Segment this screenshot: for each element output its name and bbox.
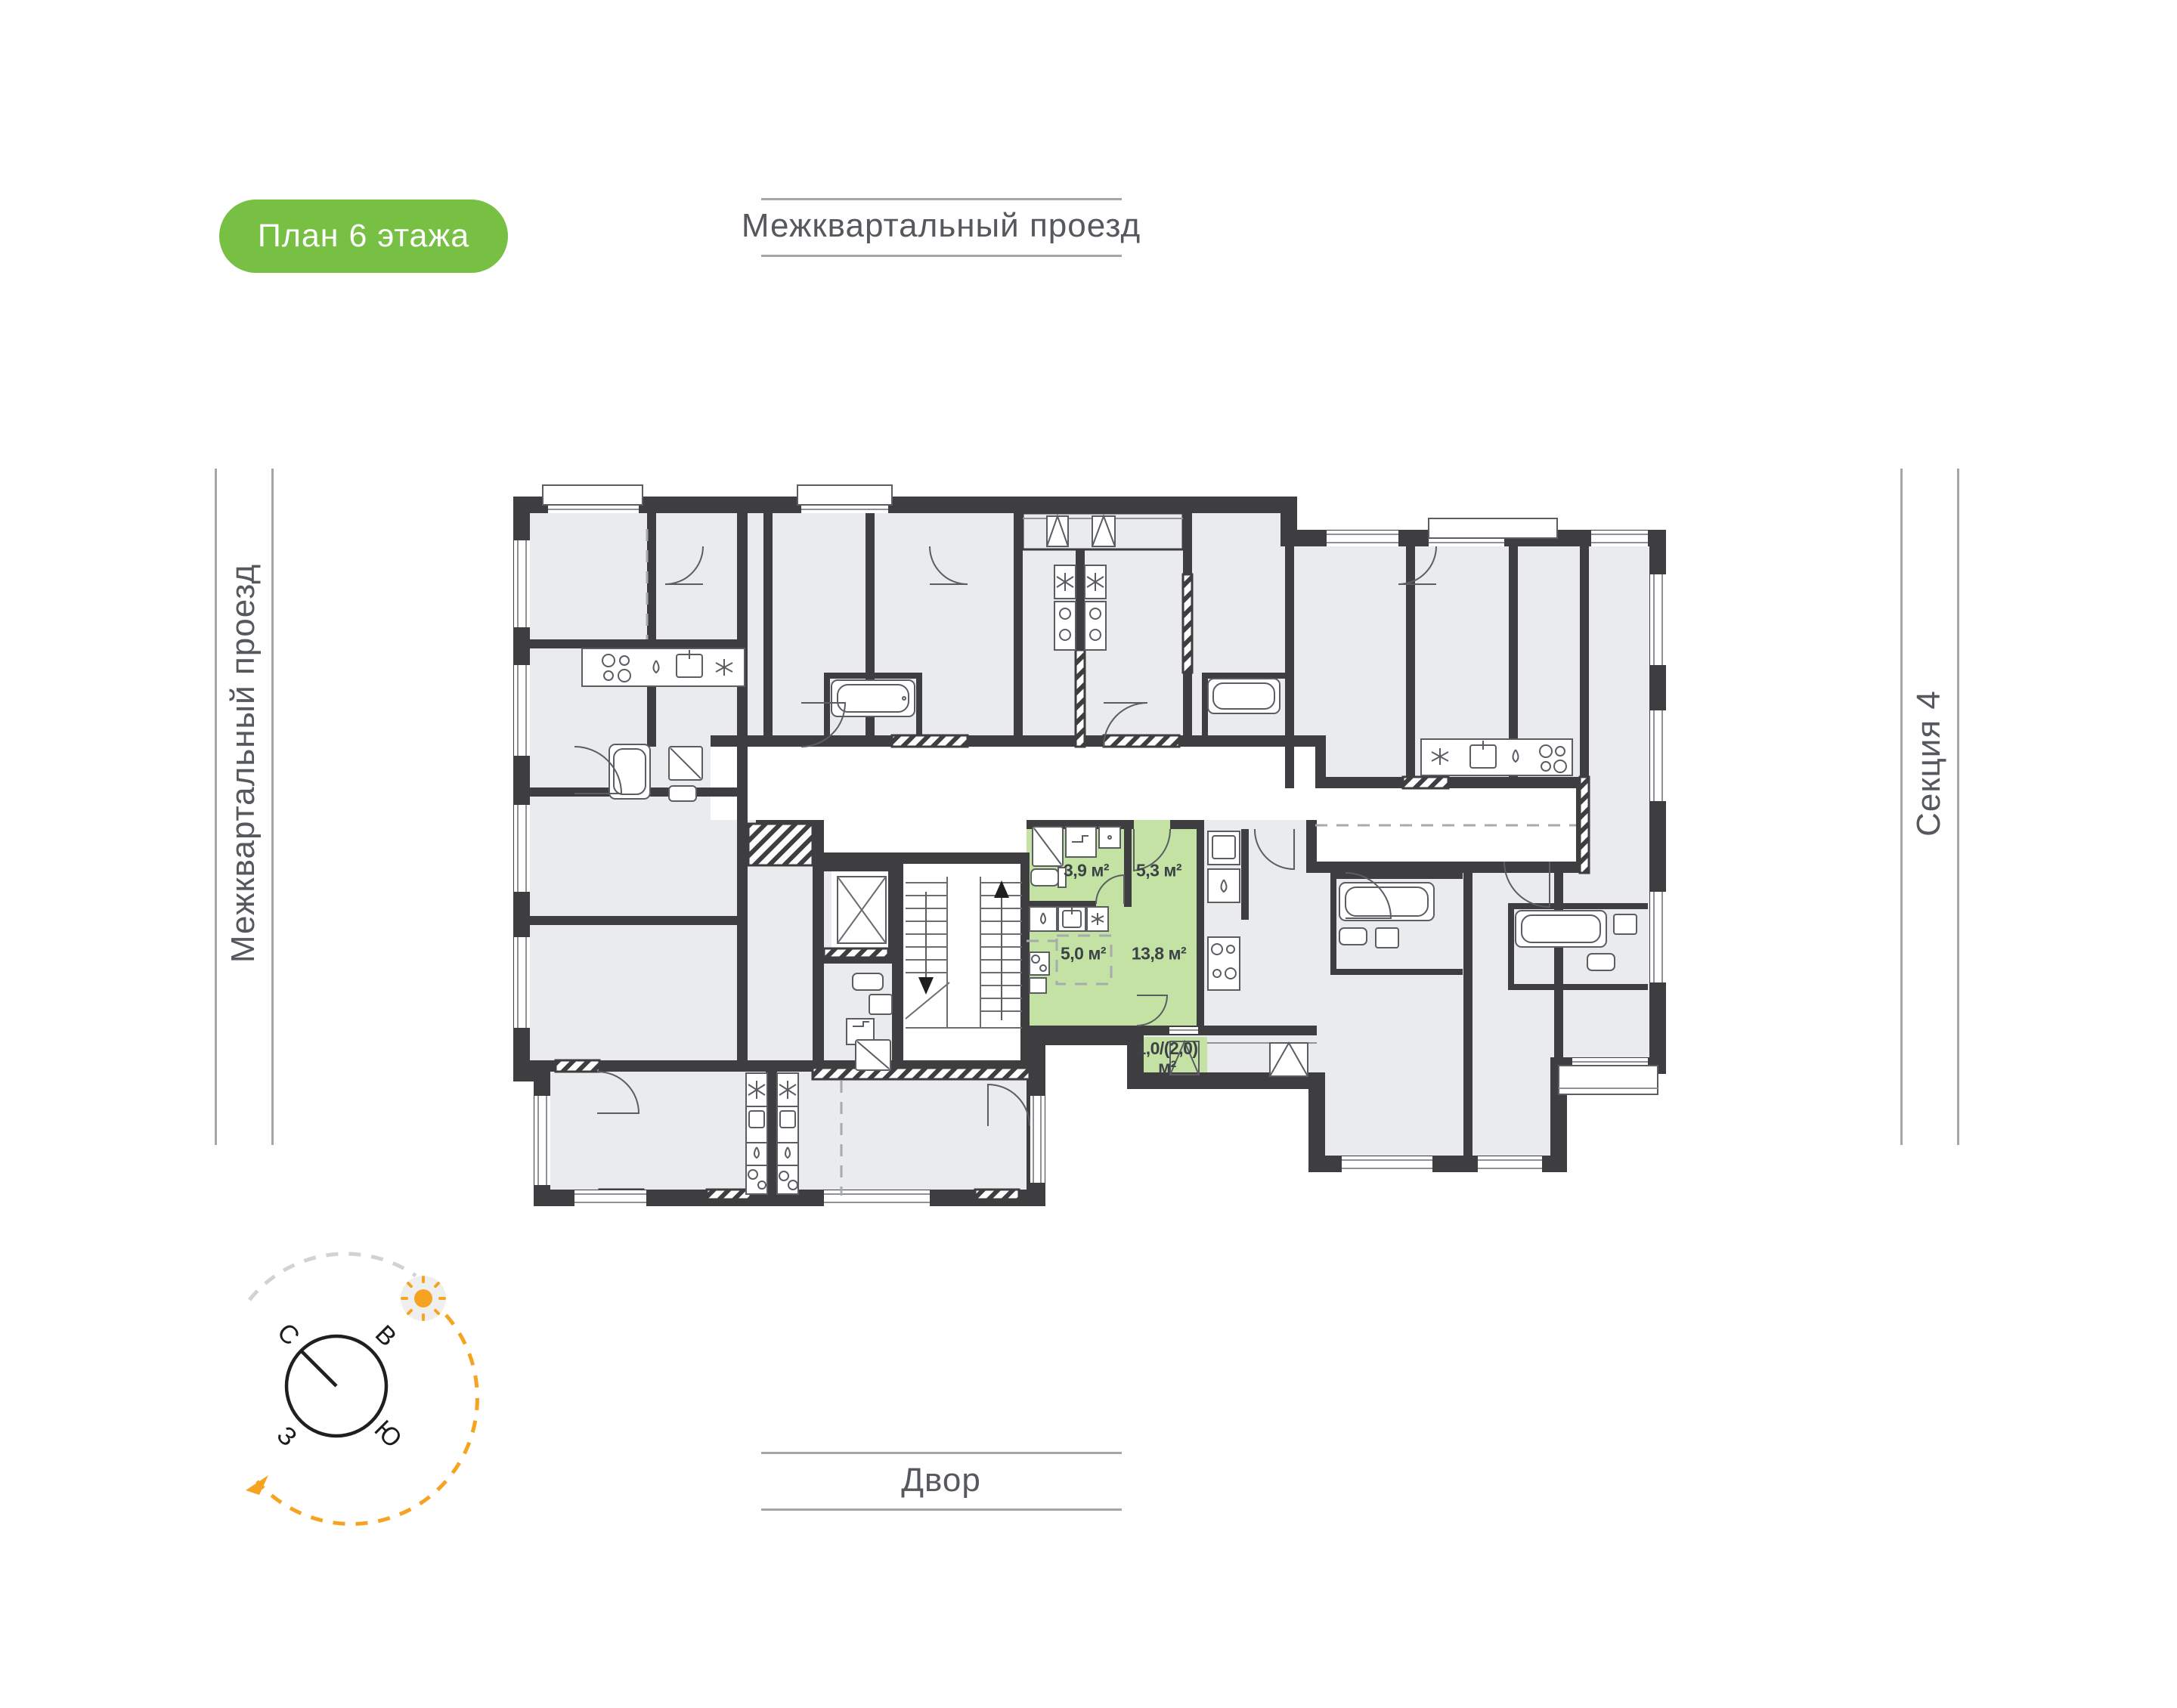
page: План 6 этажа Межквартальный проезд Межкв… xyxy=(0,0,2177,1708)
wc-icon xyxy=(1031,868,1066,887)
floor-badge-label: План 6 этажа xyxy=(258,218,469,255)
floor-badge: План 6 этажа xyxy=(219,200,508,273)
top-road-rule-upper xyxy=(761,198,1122,200)
bottom-road-label: Двор xyxy=(901,1462,981,1499)
section-rule-inner xyxy=(1900,469,1903,1145)
top-road-rule-lower xyxy=(761,255,1122,257)
section-label: Секция 4 xyxy=(1910,690,1948,837)
room-area-bathroom[interactable]: 3,9 м² xyxy=(1064,862,1109,880)
room-area-balcony[interactable]: 1,0/(2,0) м² xyxy=(1136,1039,1197,1077)
room-area-hallway[interactable]: 5,3 м² xyxy=(1136,862,1181,880)
room-area-kitchen[interactable]: 5,0 м² xyxy=(1061,945,1106,964)
shower-tray-icon xyxy=(1033,827,1063,866)
left-road-rule-inner xyxy=(271,469,274,1145)
compass-arrow xyxy=(246,1475,268,1495)
bottom-road-rule-upper xyxy=(761,1452,1122,1454)
section-rule-outer xyxy=(1957,469,1959,1145)
bathtub-icon xyxy=(1516,911,1606,947)
left-road-rule-outer xyxy=(215,469,217,1145)
room-area-living[interactable]: 13,8 м² xyxy=(1132,945,1186,964)
bottom-road-rule-lower xyxy=(761,1508,1122,1511)
compass xyxy=(246,1254,477,1524)
sun-icon xyxy=(401,1276,446,1321)
bathtub-icon xyxy=(1339,883,1434,921)
left-road-label: Межквартальный проезд xyxy=(225,564,262,963)
washer-icon xyxy=(1066,827,1096,857)
bathtub-icon xyxy=(1208,679,1280,713)
top-road-label: Межквартальный проезд xyxy=(742,207,1141,245)
